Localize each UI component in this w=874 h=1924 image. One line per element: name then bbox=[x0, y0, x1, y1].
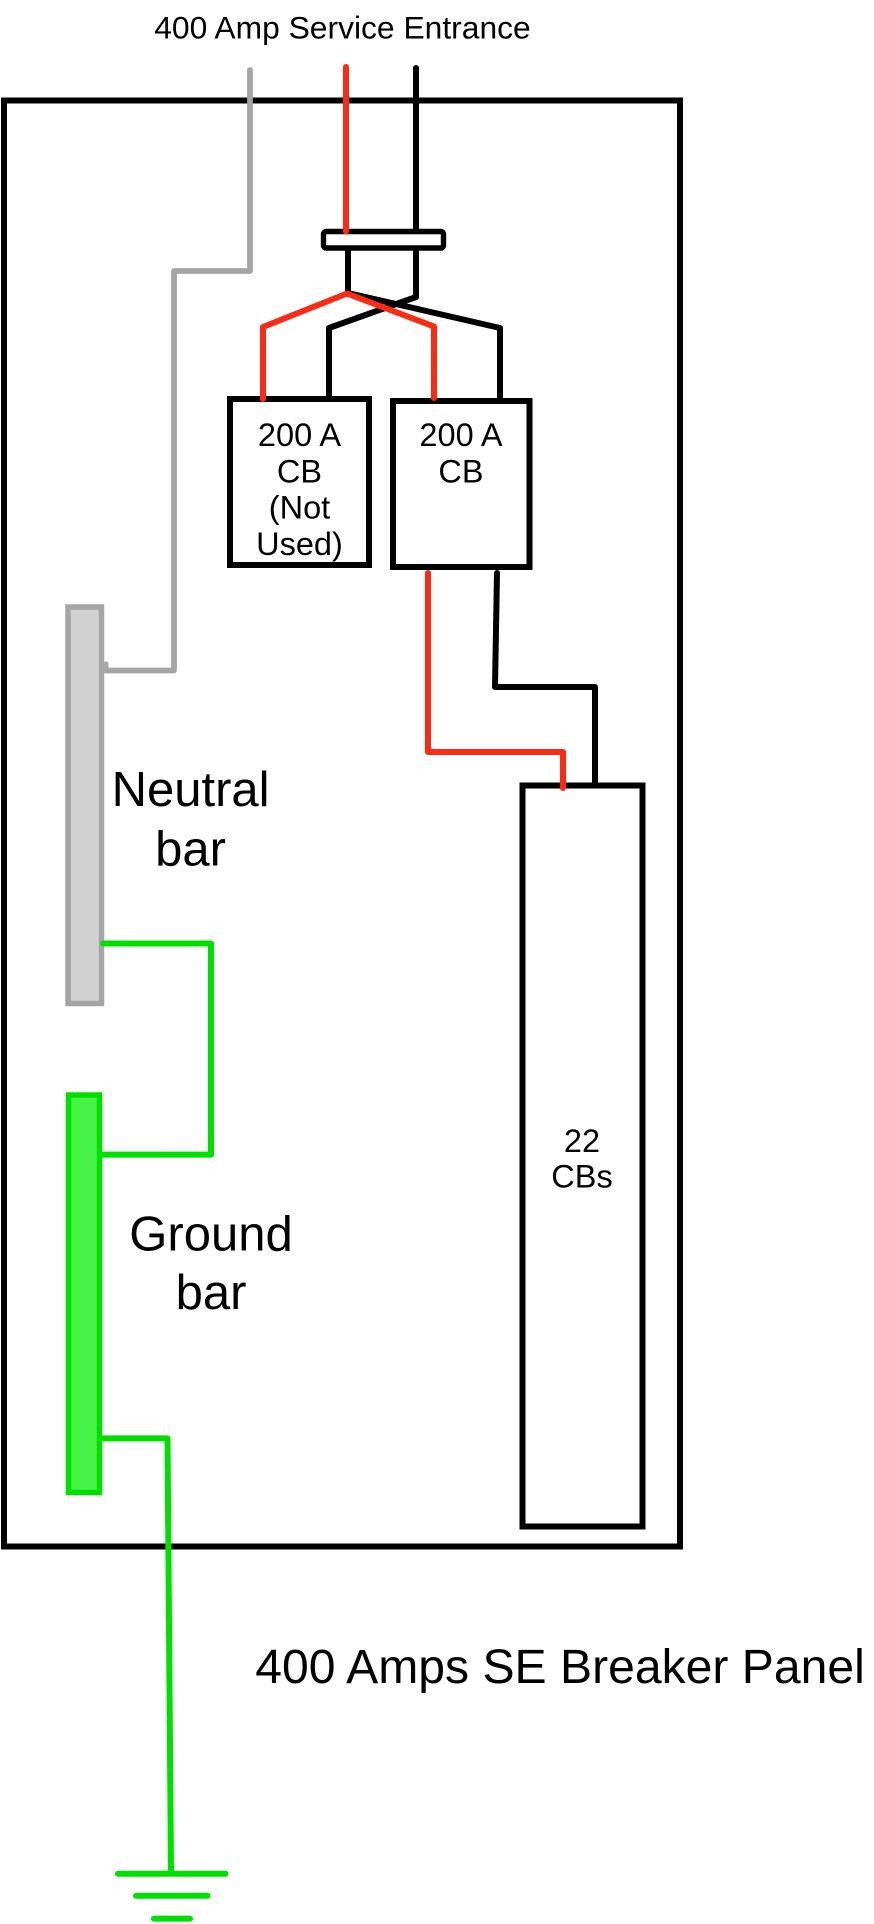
svg-text:400 Amps SE Breaker Panel: 400 Amps SE Breaker Panel bbox=[255, 1640, 865, 1694]
svg-text:22: 22 bbox=[564, 1123, 600, 1159]
svg-text:Used): Used) bbox=[256, 526, 343, 562]
svg-text:200 A: 200 A bbox=[258, 417, 341, 453]
svg-text:CBs: CBs bbox=[551, 1159, 612, 1195]
svg-text:Ground: Ground bbox=[129, 1207, 292, 1261]
svg-text:400 Amp Service Entrance: 400 Amp Service Entrance bbox=[154, 10, 530, 46]
svg-text:Neutral: Neutral bbox=[112, 763, 270, 817]
svg-text:200 A: 200 A bbox=[419, 417, 502, 453]
svg-text:CB: CB bbox=[277, 453, 322, 489]
svg-text:(Not: (Not bbox=[269, 490, 330, 526]
svg-text:bar: bar bbox=[176, 1266, 247, 1320]
svg-text:CB: CB bbox=[438, 453, 483, 489]
svg-text:bar: bar bbox=[155, 822, 226, 876]
